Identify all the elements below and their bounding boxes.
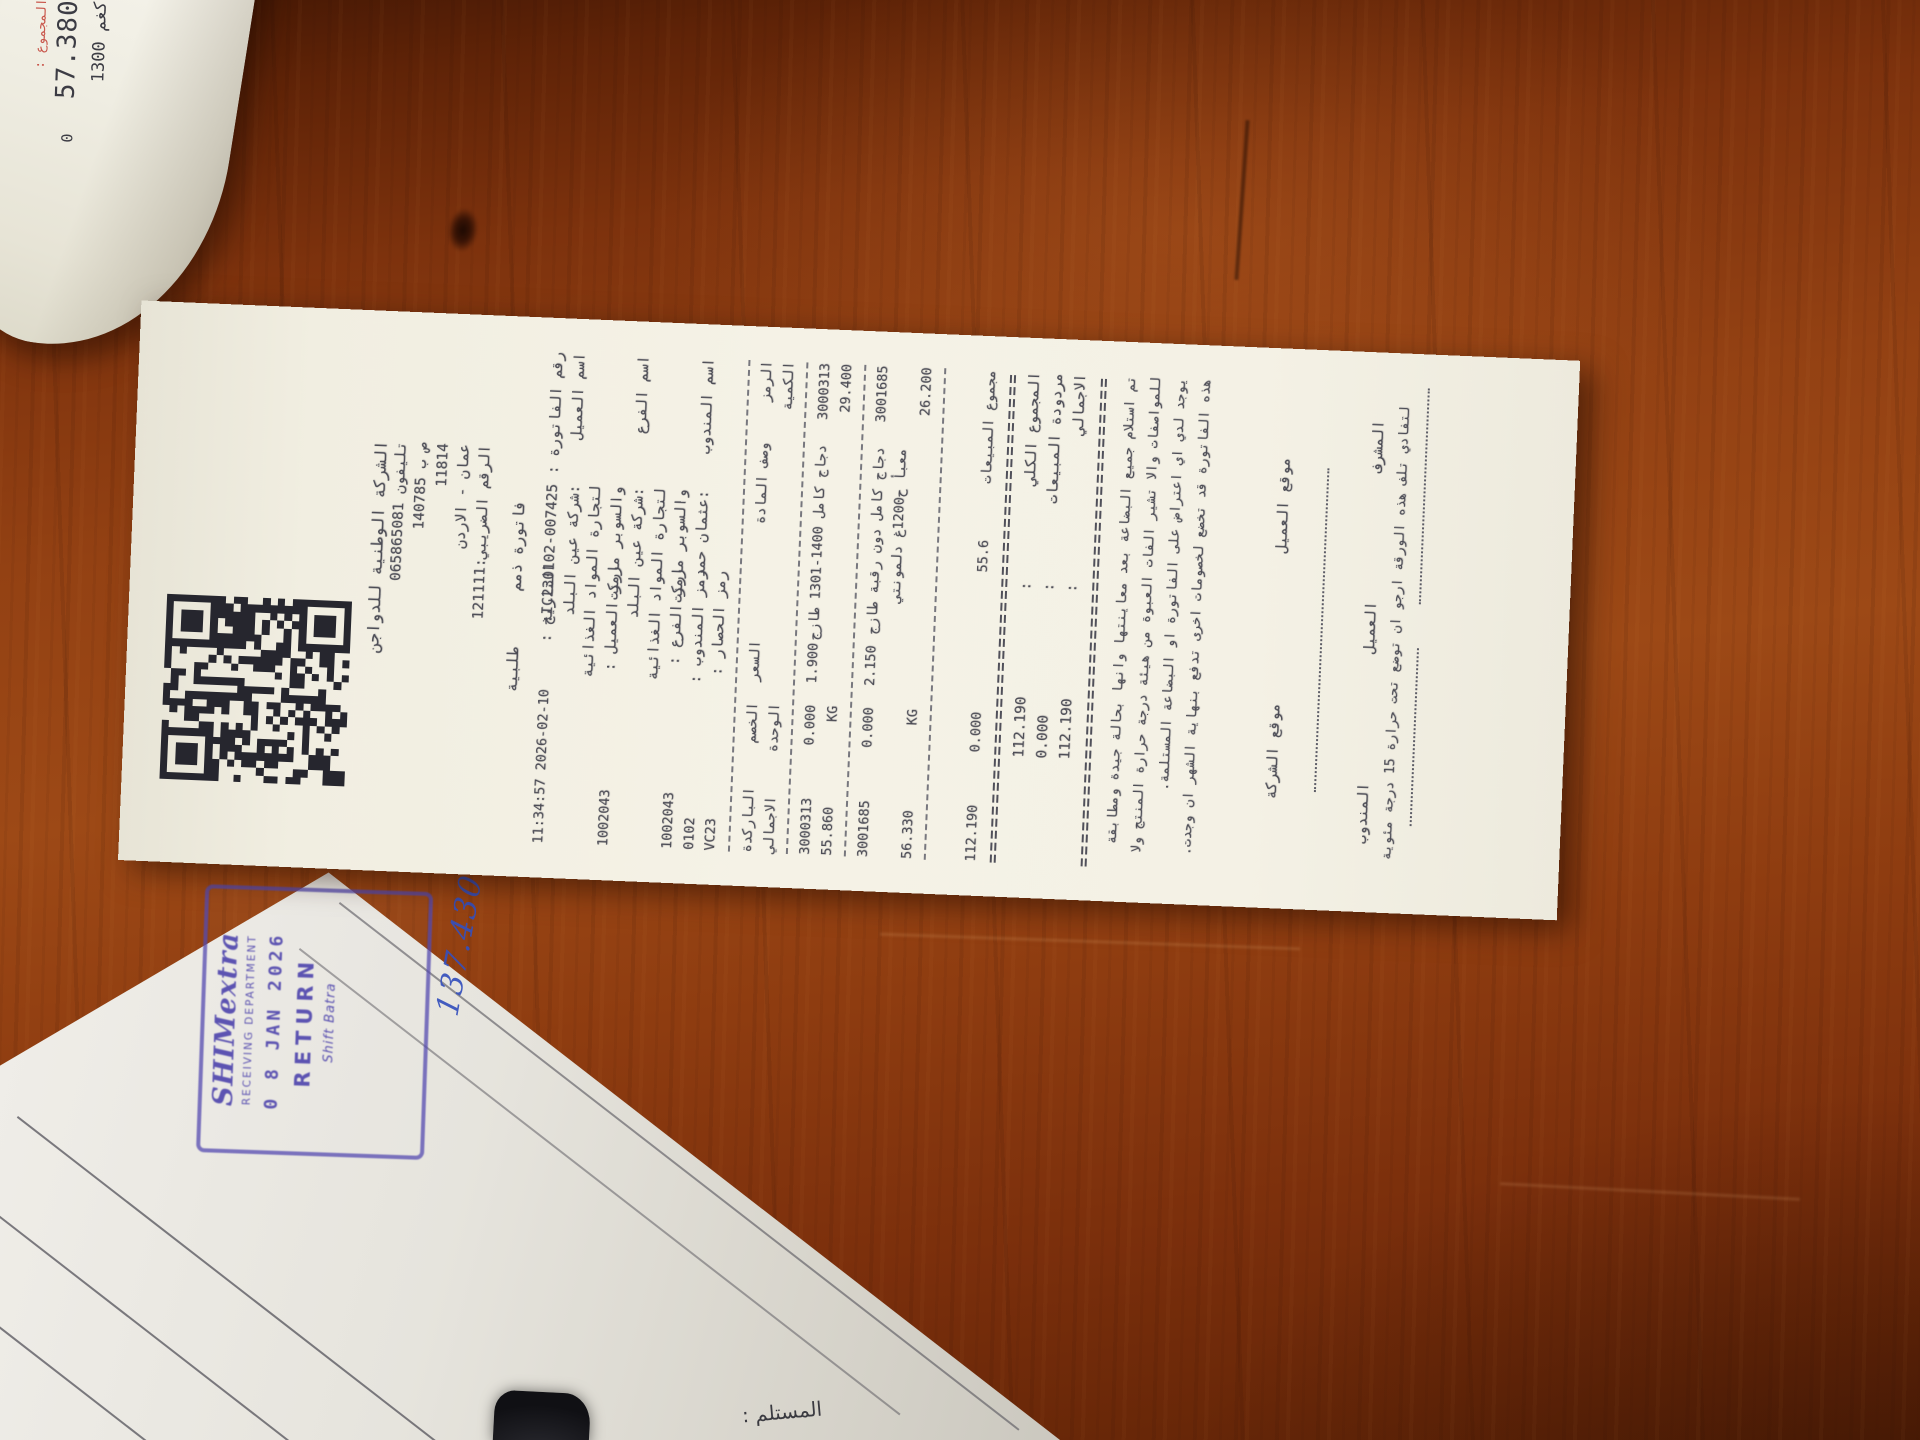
grand-totals: المجموع الكلي : 112.190 مردودة المبيعات … bbox=[1003, 372, 1093, 866]
main-receipt-paper: الشركة الوطنية للدواجن تليفون 065865081 … bbox=[118, 300, 1580, 920]
item-price: 2.150 bbox=[858, 645, 883, 708]
invoice-fields: رقم الفاتورة : IC230102-007425: التاريخ … bbox=[528, 352, 742, 852]
item-quantity: 29.400 bbox=[832, 364, 857, 447]
invoice-title: فاتورة ذمم طلبية bbox=[496, 350, 535, 842]
company-signature-label: موقع الشركة bbox=[1263, 703, 1283, 800]
main-receipt: الشركة الوطنية للدواجن تليفون 065865081 … bbox=[118, 860, 678, 1440]
sales-total-discount: 0.000 bbox=[963, 711, 988, 774]
field-value bbox=[712, 491, 737, 568]
grand-value: 112.190 bbox=[1054, 629, 1082, 760]
field-label bbox=[715, 359, 742, 488]
photo-scene: المجموع : 57.380 0 كغم 1300 137.4300 الم… bbox=[0, 0, 1920, 1440]
representative-label: المندوب bbox=[1353, 783, 1372, 845]
item-total: 56.330 bbox=[895, 771, 921, 860]
col-total: الاجمالي bbox=[757, 765, 783, 854]
item-total: 55.860 bbox=[815, 767, 841, 856]
item-unit: KG bbox=[899, 709, 924, 772]
sales-total-label: مجموع المبيعات bbox=[973, 370, 1002, 541]
customer-signature-label: موقع العميل bbox=[1273, 457, 1293, 554]
side-receipt-kg-line: كغم 1300 bbox=[85, 0, 113, 121]
col-unit: الوحدة bbox=[761, 703, 786, 766]
item-unit: KG bbox=[819, 705, 844, 768]
invoice-order-word: طلبية bbox=[502, 647, 522, 693]
item-discount: 0.000 bbox=[797, 704, 822, 767]
qr-code bbox=[159, 594, 352, 787]
invoice-type: فاتورة ذمم bbox=[507, 500, 529, 591]
sales-total-amount: 112.190 bbox=[959, 773, 985, 862]
supervisor-label: المشرف bbox=[1369, 420, 1387, 473]
dotted-segment bbox=[1418, 388, 1429, 604]
side-receipt-weight: 57.380 0 bbox=[48, 0, 89, 120]
curled-receipt-text: المجموع : 57.380 0 كغم 1300 bbox=[30, 0, 244, 125]
col-price: السعر bbox=[742, 640, 767, 703]
item-quantity: 26.200 bbox=[912, 367, 937, 450]
sales-total-qty: 55.6 bbox=[970, 540, 995, 613]
signature-titles-row: موقع العميل موقع الشركة bbox=[1260, 382, 1297, 874]
item-price: 1.900 bbox=[800, 642, 825, 705]
company-block: الشركة الوطنية للدواجن تليفون 065865081 … bbox=[354, 344, 500, 841]
col-discount: الخصم bbox=[739, 702, 764, 765]
field-label: رمز الحصار : bbox=[707, 571, 733, 690]
item-discount: 0.000 bbox=[855, 707, 880, 770]
terms-paragraph: تم استلام جميع البضاعة بعد معاينتها وانه… bbox=[1098, 375, 1219, 871]
dotted-segment bbox=[1409, 649, 1418, 826]
client-label: العميل bbox=[1361, 601, 1379, 654]
col-quantity: الكمية bbox=[775, 361, 800, 444]
signature-dotted-line bbox=[1313, 468, 1329, 793]
